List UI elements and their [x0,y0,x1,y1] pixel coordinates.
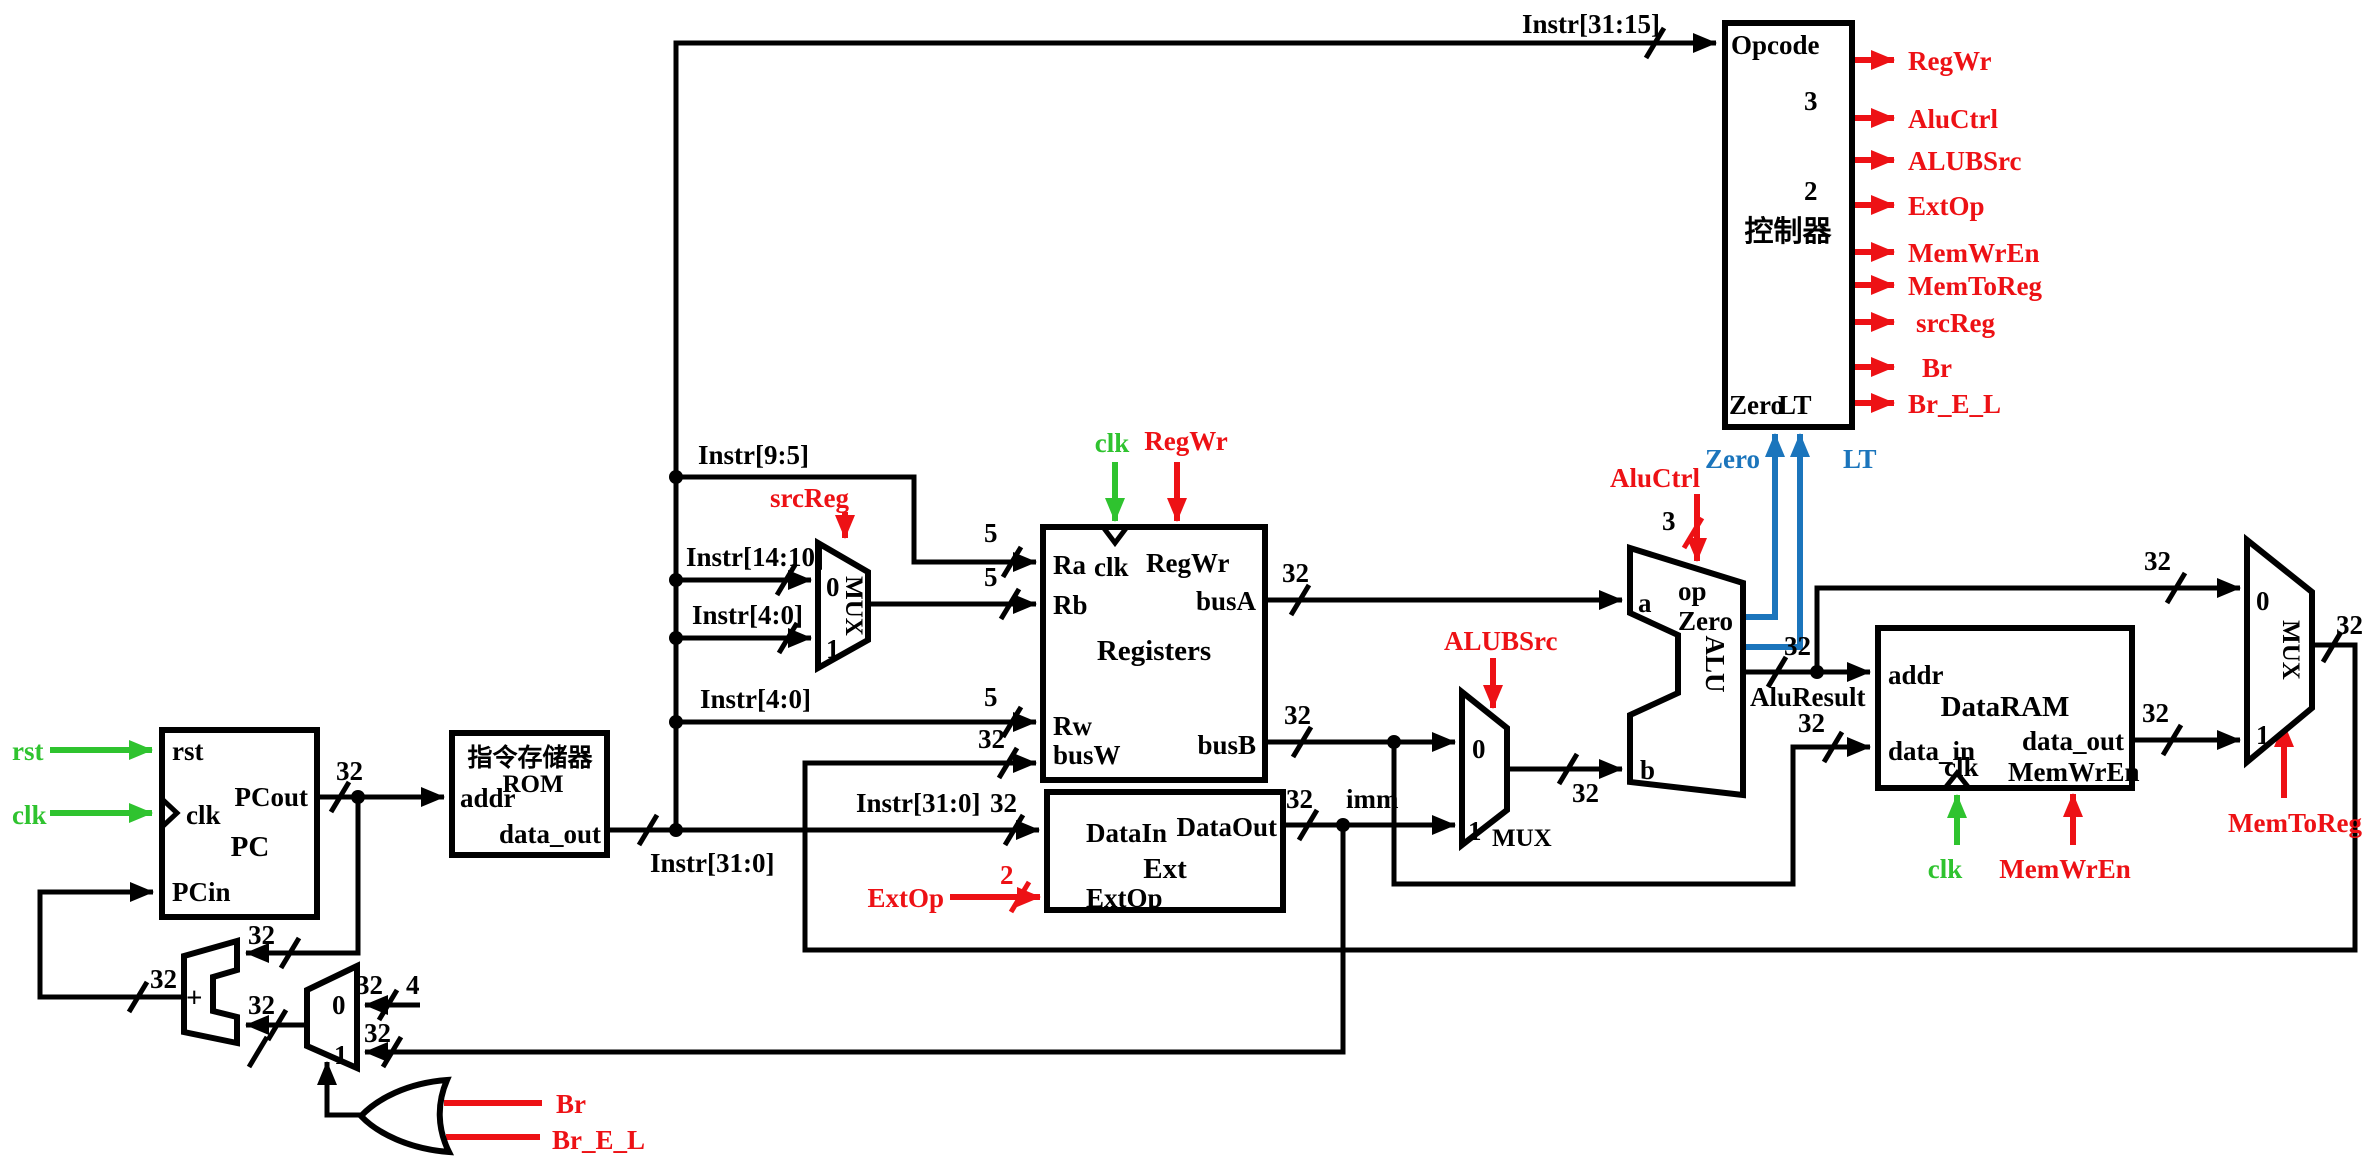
wire-srcmux-to-rb [868,589,1036,619]
alu-title: ALU [1700,635,1730,692]
width-busw-32: 32 [978,724,1005,754]
dataram-port-memwren: MemWrEn [2008,757,2139,787]
label-aluctrl-red: AluCtrl [1610,463,1700,493]
label-const-4: 4 [406,970,420,1000]
rom-port-addr: addr [460,783,516,813]
cpu-datapath-diagram: Instr[31:15] Opcode 控制器 Zero LT RegWr Al… [0,0,2374,1167]
controller-out-extop: ExtOp [1908,191,1985,221]
width-ra-5: 5 [984,518,998,548]
width-extop-2-red: 2 [1000,860,1014,890]
registers-port-rw: Rw [1053,711,1092,741]
width-extop: 2 [1804,176,1818,206]
controller-out-regwr: RegWr [1908,46,1991,76]
rom-title: 指令存储器 [467,743,593,772]
controller-title: 控制器 [1744,215,1832,248]
registers-title: Registers [1097,635,1211,667]
label-instr-31-0-ext: Instr[31:0] [856,788,980,818]
width-aluresult-32: 32 [1784,631,1811,661]
ext-port-dataout: DataOut [1177,812,1278,842]
alubsrc-mux-1: 1 [1468,816,1482,846]
label-clk-green: clk [12,800,47,830]
ext-block [1047,792,1283,910]
controller-out-alubsrc: ALUBSrc [1908,146,2022,176]
srcreg-mux-0: 0 [826,572,840,602]
label-clk-green-dataram: clk [1928,854,1963,884]
ext-port-extop: ExtOp [1086,883,1163,913]
width-adder-top-32: 32 [248,920,275,950]
width-ramout-32: 32 [2142,698,2169,728]
label-regwr-red: RegWr [1144,426,1227,456]
label-instr-4-0-b: Instr[4:0] [700,684,811,714]
controller-port-opcode: Opcode [1731,30,1820,60]
wire-pcout [317,782,444,812]
alu-port-a: a [1638,588,1652,618]
label-memtoreg-red: MemToReg [2228,808,2362,838]
wire-busb-to-mux0 [1265,727,1455,757]
width-rw-5: 5 [984,682,998,712]
pc-title: PC [231,831,270,863]
controller-port-lt: LT [1778,390,1812,420]
label-clk-green-registers: clk [1095,428,1130,458]
wire-aluctrl-red [1684,494,1702,561]
dataram-port-dataout: data_out [2022,726,2124,756]
width-imm-in-32: 32 [364,1018,391,1048]
ext-title: Ext [1143,853,1187,885]
wire-extop-red [950,882,1040,912]
registers-port-clk: clk [1094,552,1129,582]
registers-port-ra: Ra [1053,550,1086,580]
width-four-32: 32 [356,970,383,1000]
width-adder-bottom-32: 32 [248,990,275,1020]
pc-port-pcin: PCin [172,877,231,907]
registers-port-busb: busB [1197,730,1256,760]
alu-port-zero: Zero [1678,606,1733,636]
width-rb-5: 5 [984,562,998,592]
width-aluctrl: 3 [1804,86,1818,116]
dataram-port-clk: clk [1944,752,1979,782]
pc-port-rst: rst [172,736,203,766]
memtoreg-mux-0: 0 [2256,586,2270,616]
width-mux0-32: 32 [2144,546,2171,576]
label-lt-blue: LT [1843,444,1877,474]
width-busa-32: 32 [1282,558,1309,588]
label-instr-31-15: Instr[31:15] [1522,9,1660,39]
dataram-title: DataRAM [1941,691,2070,723]
srcreg-mux-label: MUX [840,576,867,636]
dataram-port-addr: addr [1888,660,1944,690]
ext-port-datain: DataIn [1086,818,1167,848]
width-pcout-32: 32 [336,756,363,786]
label-srcreg-red: srcReg [770,483,849,513]
width-alub-32: 32 [1572,778,1599,808]
alu-port-op: op [1678,576,1707,606]
branch-mux-0: 0 [332,990,346,1020]
wire-rom-dataout-instr [607,815,1039,845]
label-extop-red: ExtOp [867,883,944,913]
label-instr-31-0-rom: Instr[31:0] [650,848,774,878]
controller-out-srcreg: srcReg [1916,308,1995,338]
branch-or-gate [361,1080,449,1152]
label-br-e-l-red: Br_E_L [552,1125,645,1155]
label-instr-14-10: Instr[14:10] [686,542,824,572]
label-memwren-red: MemWrEn [1999,854,2130,884]
registers-port-rb: Rb [1053,590,1088,620]
width-wb-32: 32 [2336,610,2363,640]
controller-out-br-e-l: Br_E_L [1908,389,2001,419]
label-br-red: Br [556,1089,586,1119]
label-zero-blue: Zero [1705,444,1760,474]
registers-port-busa: busA [1196,586,1257,616]
controller-out-aluctrl: AluCtrl [1908,104,1998,134]
adder-plus: + [186,982,203,1014]
pc-port-clk: clk [186,800,221,830]
controller-port-zero: Zero [1729,390,1784,420]
wire-ram-dataout-to-mux1 [2132,725,2240,755]
wire-ext-dataout-imm [1283,810,1455,840]
registers-port-regwr: RegWr [1146,548,1229,578]
width-imm-32: 32 [1286,784,1313,814]
branch-mux-1: 1 [334,1040,348,1070]
alubsrc-mux-label: MUX [1492,825,1552,852]
label-imm: imm [1346,784,1399,814]
label-instr-9-5: Instr[9:5] [698,440,809,470]
wire-alubsrc-mux-to-alu-b [1507,754,1622,784]
pc-port-pcout: PCout [235,782,309,812]
wire-busa-to-alu-a [1265,585,1622,615]
label-alubsrc-red: ALUBSrc [1444,626,1558,656]
rom-port-dataout: data_out [499,819,601,849]
width-instr-32: 32 [990,788,1017,818]
width-busb-32: 32 [1284,700,1311,730]
width-datain-32: 32 [1798,708,1825,738]
label-instr-4-0-a: Instr[4:0] [692,600,803,630]
alu-port-b: b [1640,755,1655,785]
controller-out-memtoreg: MemToReg [1908,271,2042,301]
memtoreg-mux-1: 1 [2256,720,2270,750]
registers-port-busw: busW [1053,740,1121,770]
srcreg-mux-1: 1 [826,634,840,664]
width-aluctrl-3: 3 [1662,506,1676,536]
width-adder-out-32: 32 [150,964,177,994]
label-rst-green: rst [12,736,43,766]
controller-out-br: Br [1922,353,1952,383]
controller-out-memwren: MemWrEn [1908,238,2039,268]
alubsrc-mux-0: 0 [1472,734,1486,764]
memtoreg-mux-label: MUX [2277,620,2304,680]
